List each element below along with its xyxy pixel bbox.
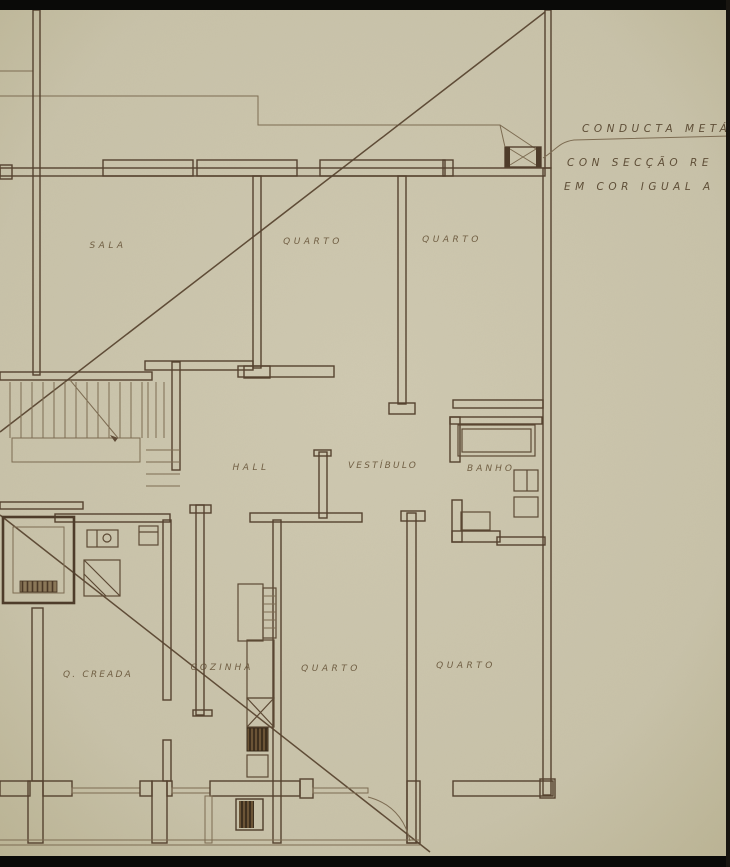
scan-border-bottom <box>0 856 730 867</box>
conducta-box-end <box>536 147 541 167</box>
floor-plan-drawing: CONDUCTA METÁ CON SECÇÃO RE EM COR IGUAL… <box>0 0 730 867</box>
vestibulo-label: VESTÍBULO <box>348 459 418 471</box>
quarto-top-right-label: QUARTO <box>422 235 482 245</box>
quarto-bottom-left-label: QUARTO <box>301 664 361 674</box>
cozinha-label: COZINHA <box>191 663 254 673</box>
quarto-bottom-right-label: QUARTO <box>436 661 496 671</box>
hall-label: HALL <box>233 463 270 473</box>
annotation-text: CONDUCTA METÁ CON SECÇÃO RE EM COR IGUAL… <box>564 122 730 193</box>
duct-hatch-fill-lower <box>239 801 254 828</box>
conducta-box-end <box>505 147 510 167</box>
scan-border-right <box>726 0 730 867</box>
scan-border-top <box>0 0 730 10</box>
annotation-line-1: CONDUCTA METÁ <box>582 122 730 135</box>
scanned-floor-plan: CONDUCTA METÁ CON SECÇÃO RE EM COR IGUAL… <box>0 0 730 867</box>
sala-label: SALA <box>89 241 126 251</box>
duct-hatch-box <box>247 728 268 751</box>
q-creada-label: Q. CREADA <box>63 670 133 680</box>
annotation-line-2: CON SECÇÃO RE <box>567 156 713 169</box>
annotation-line-3: EM COR IGUAL A <box>564 181 715 193</box>
banho-label: BANHO <box>467 464 515 474</box>
quarto-top-left-label: QUARTO <box>283 237 343 247</box>
shaft-hatch <box>20 581 57 592</box>
